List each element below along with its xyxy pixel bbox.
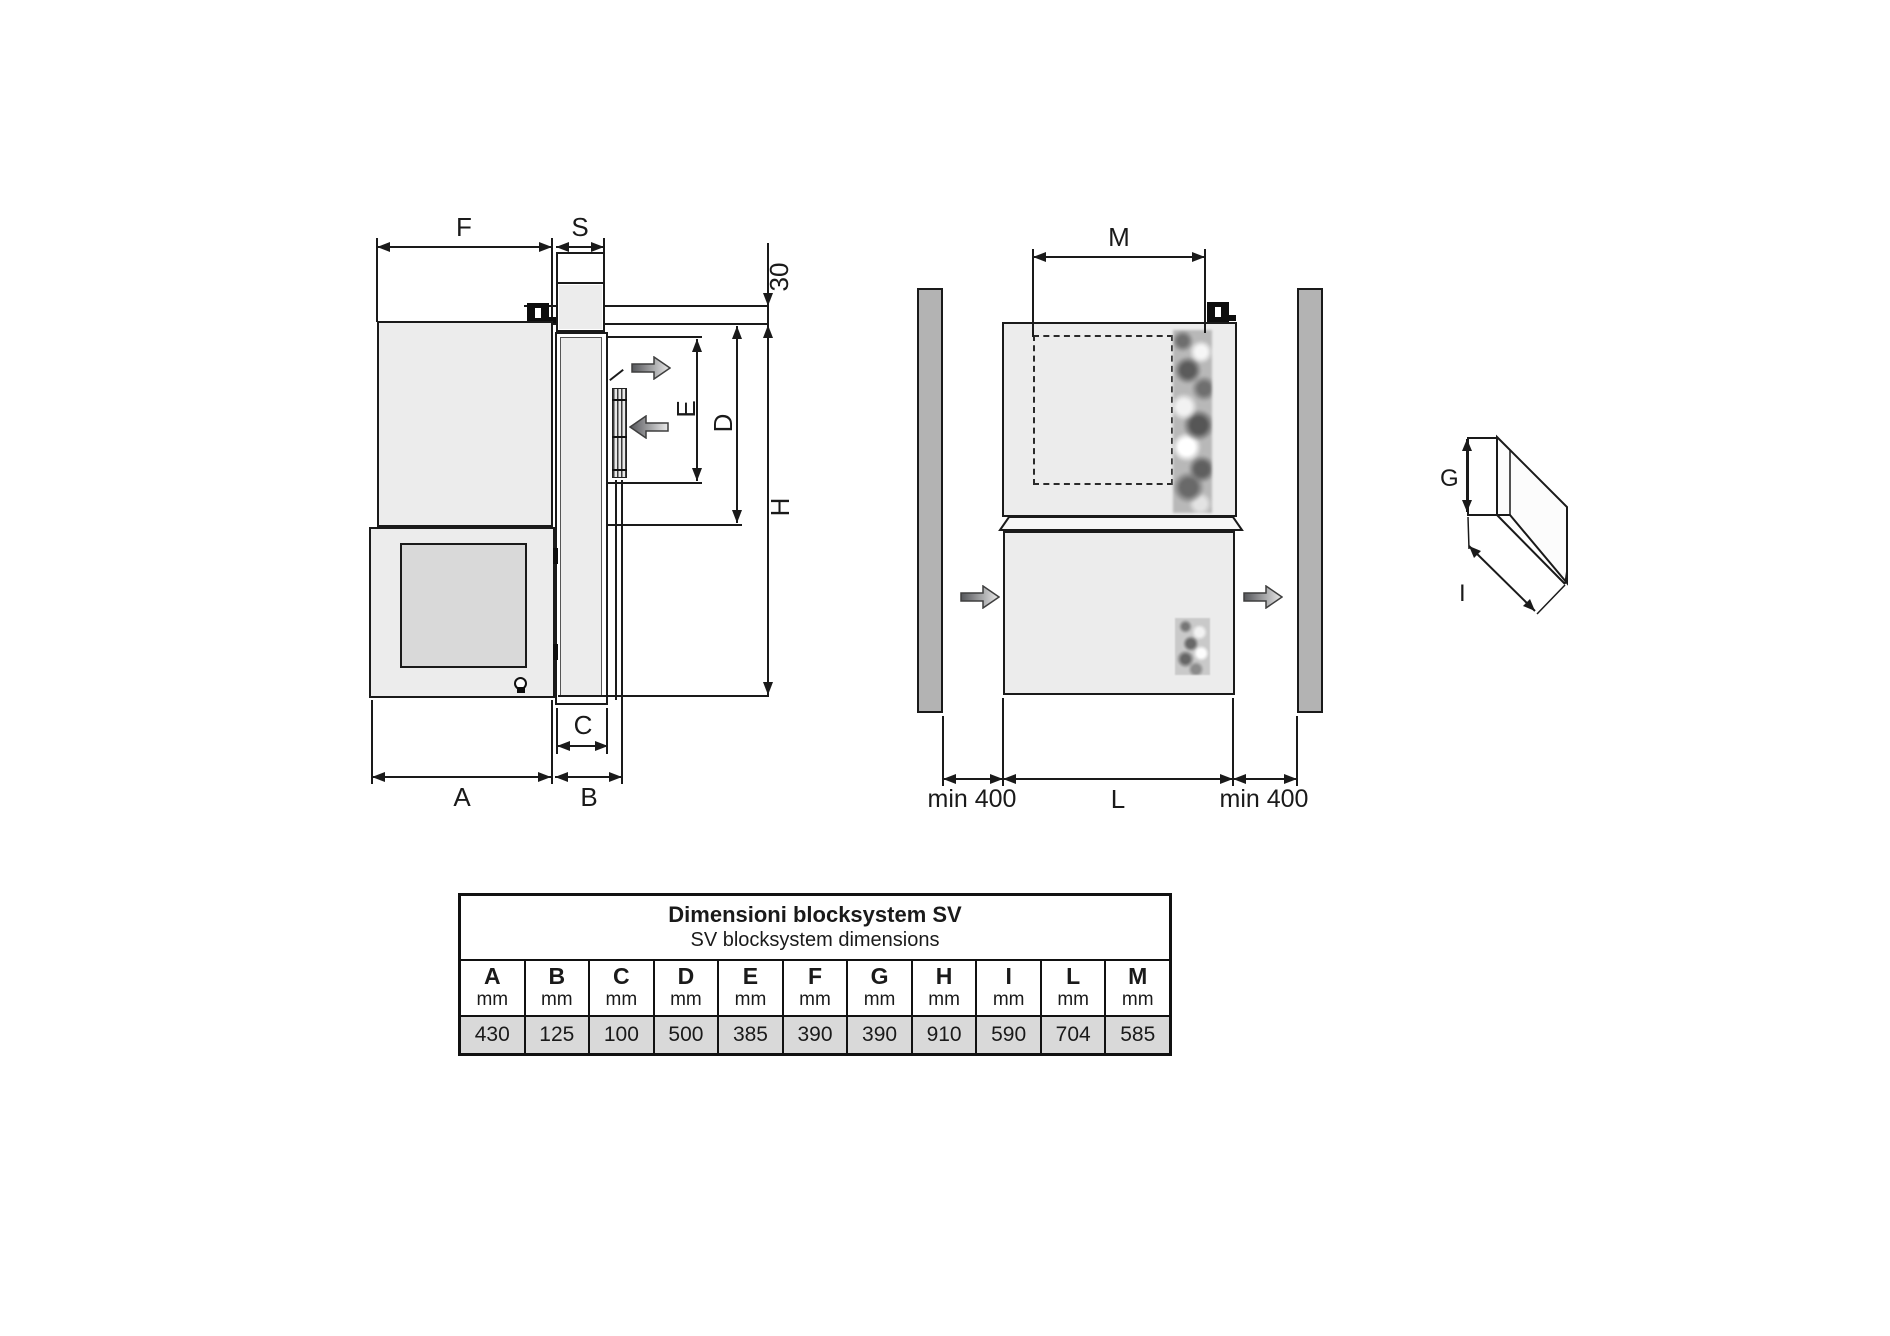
table-value-cell: 390 — [782, 1017, 847, 1053]
table-value-cell: 385 — [717, 1017, 782, 1053]
col-unit: mm — [913, 989, 976, 1011]
table-header-cell: C mm — [588, 961, 653, 1015]
sketch-front-face — [1468, 438, 1497, 515]
col-letter: C — [590, 963, 653, 989]
corner-sketch: G I — [1430, 425, 1600, 630]
table-title-line1: Dimensioni blocksystem SV — [461, 902, 1169, 928]
col-unit: mm — [1042, 989, 1105, 1011]
table-header-cell: F mm — [782, 961, 847, 1015]
dim-line-clearance-left — [943, 778, 1003, 780]
sketch-slanted-face — [1497, 437, 1567, 583]
ceiling-clamp-slot — [1215, 307, 1221, 317]
extension-line — [1537, 585, 1565, 614]
extension-line — [1232, 698, 1234, 786]
table-value-cell: 500 — [653, 1017, 718, 1053]
col-letter: H — [913, 963, 976, 989]
table-header-cell: D mm — [653, 961, 718, 1015]
col-letter: I — [977, 963, 1040, 989]
extension-line — [1468, 517, 1469, 549]
table-title-line2: SV blocksystem dimensions — [461, 928, 1169, 952]
table-header-cell: L mm — [1040, 961, 1105, 1015]
col-letter: G — [848, 963, 911, 989]
condenser-texture — [1173, 330, 1212, 513]
dim-label-I: I — [1459, 580, 1466, 607]
dim-label-L: L — [1103, 786, 1133, 812]
airflow-out-arrow-icon — [1243, 585, 1283, 609]
col-unit: mm — [848, 989, 911, 1011]
dim-line-M — [1033, 256, 1205, 258]
table-value-cell: 704 — [1040, 1017, 1105, 1053]
table-header-cell: A mm — [461, 961, 524, 1015]
table-value-cell: 125 — [524, 1017, 589, 1053]
extension-line — [1032, 249, 1034, 337]
col-letter: D — [655, 963, 718, 989]
front-view: M min 400 L min 400 — [0, 0, 1890, 1336]
wall-right — [1297, 288, 1323, 713]
table-header-cell: B mm — [524, 961, 589, 1015]
col-letter: M — [1106, 963, 1169, 989]
table-value-cell: 910 — [911, 1017, 976, 1053]
blocksystem-dimension-drawing: F S — [0, 0, 1890, 1336]
dim-label-M: M — [1104, 224, 1134, 250]
wall-left — [917, 288, 943, 713]
col-letter: L — [1042, 963, 1105, 989]
col-letter: B — [526, 963, 589, 989]
col-unit: mm — [719, 989, 782, 1011]
table-header-cell: M mm — [1104, 961, 1169, 1015]
table-value-row: 430 125 100 500 385 390 390 910 590 704 … — [461, 1015, 1169, 1053]
col-unit: mm — [655, 989, 718, 1011]
col-letter: A — [461, 963, 524, 989]
col-unit: mm — [1106, 989, 1169, 1011]
dimensions-table: Dimensioni blocksystem SV SV blocksystem… — [458, 893, 1172, 1056]
col-unit: mm — [461, 989, 524, 1011]
dim-line-I — [1469, 546, 1535, 611]
col-unit: mm — [784, 989, 847, 1011]
table-title: Dimensioni blocksystem SV SV blocksystem… — [461, 896, 1169, 961]
col-unit: mm — [977, 989, 1040, 1011]
table-value-cell: 390 — [846, 1017, 911, 1053]
col-letter: E — [719, 963, 782, 989]
airflow-in-arrow-icon — [960, 585, 1000, 609]
table-header-cell: G mm — [846, 961, 911, 1015]
table-value-cell: 590 — [975, 1017, 1040, 1053]
table-value-cell: 430 — [461, 1017, 524, 1053]
dim-label-min400-left: min 400 — [912, 786, 1032, 812]
dim-label-G: G — [1440, 465, 1459, 492]
table-header-row: A mm B mm C mm D mm E mm F mm — [461, 961, 1169, 1015]
table-header-cell: H mm — [911, 961, 976, 1015]
col-unit: mm — [526, 989, 589, 1011]
table-value-cell: 100 — [588, 1017, 653, 1053]
extension-line — [1002, 698, 1004, 786]
col-letter: F — [784, 963, 847, 989]
table-value-cell: 585 — [1104, 1017, 1169, 1053]
table-header-cell: I mm — [975, 961, 1040, 1015]
col-unit: mm — [590, 989, 653, 1011]
product-label-texture — [1175, 618, 1210, 675]
ceiling-clamp-foot — [1227, 315, 1236, 321]
dim-label-min400-right: min 400 — [1204, 786, 1324, 812]
dim-line-L — [1003, 778, 1233, 780]
internal-opening-dashed — [1033, 335, 1173, 485]
dim-line-clearance-right — [1233, 778, 1297, 780]
table-header-cell: E mm — [717, 961, 782, 1015]
